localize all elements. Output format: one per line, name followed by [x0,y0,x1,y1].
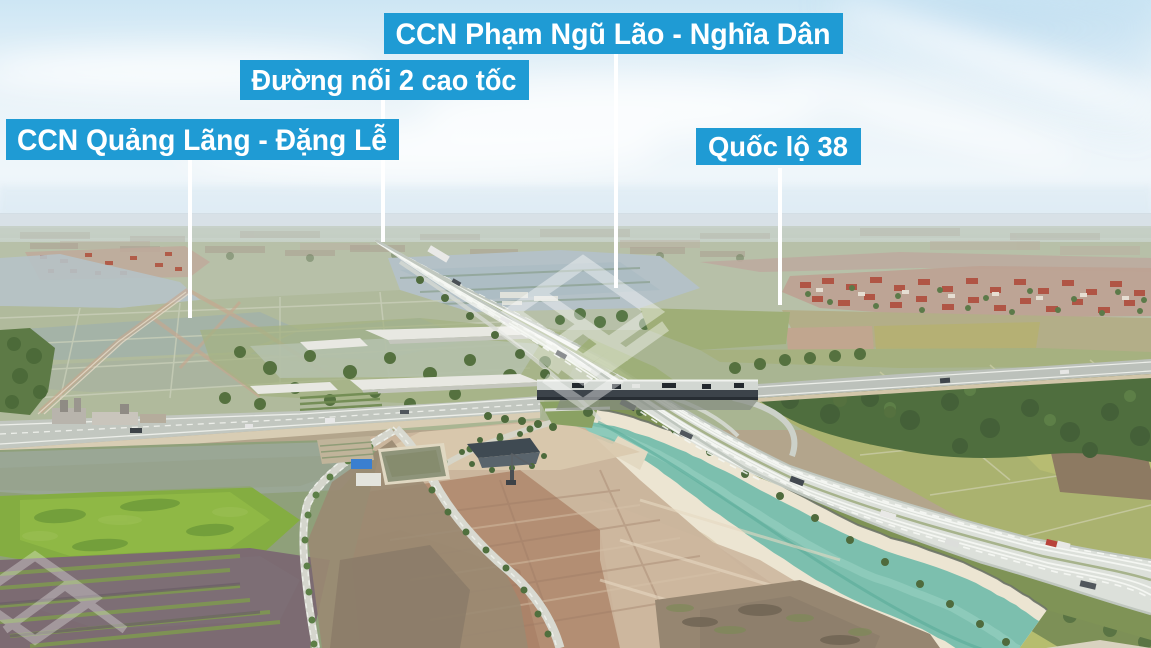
svg-text:CCN Quảng Lãng - Đặng Lễ: CCN Quảng Lãng - Đặng Lễ [17,123,387,157]
svg-text:Quốc lộ 38: Quốc lộ 38 [708,131,848,162]
svg-text:Đường nối 2 cao tốc: Đường nối 2 cao tốc [252,65,517,97]
svg-text:CCN Phạm Ngũ Lão - Nghĩa Dân: CCN Phạm Ngũ Lão - Nghĩa Dân [396,18,831,51]
